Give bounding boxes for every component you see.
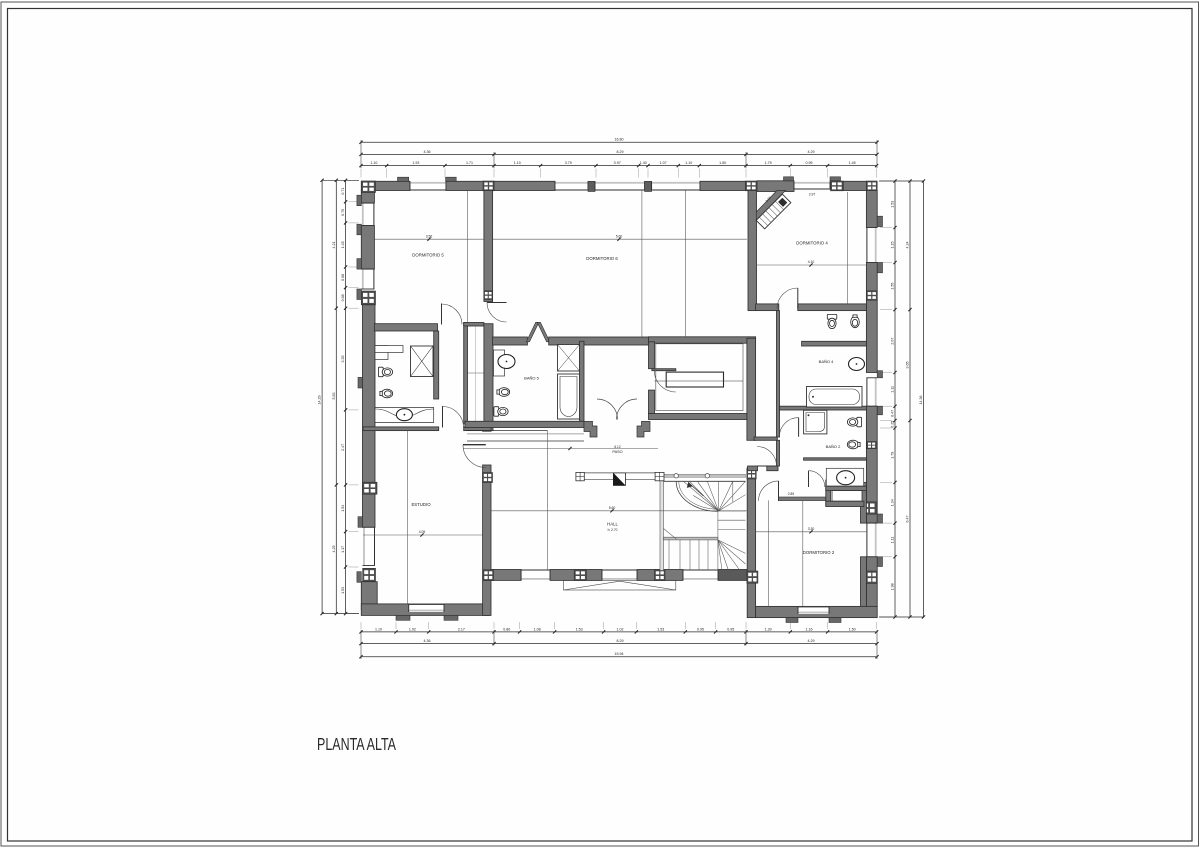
svg-text:PASO: PASO bbox=[612, 450, 622, 454]
svg-text:1.15: 1.15 bbox=[891, 242, 895, 249]
svg-text:4.24: 4.24 bbox=[906, 242, 910, 249]
svg-text:3.79: 3.79 bbox=[565, 161, 572, 165]
svg-text:BAÑO 2: BAÑO 2 bbox=[826, 444, 841, 449]
svg-text:DORMITORIO 5: DORMITORIO 5 bbox=[412, 253, 444, 258]
svg-text:2.17: 2.17 bbox=[458, 627, 465, 631]
svg-text:1.53: 1.53 bbox=[657, 627, 664, 631]
svg-text:15.94: 15.94 bbox=[615, 652, 624, 656]
svg-text:0.25: 0.25 bbox=[891, 421, 895, 428]
svg-text:1.08: 1.08 bbox=[534, 627, 541, 631]
svg-text:14.36: 14.36 bbox=[919, 396, 923, 405]
svg-text:BAÑO 4: BAÑO 4 bbox=[819, 359, 834, 364]
svg-text:DORMITORIO 2: DORMITORIO 2 bbox=[803, 550, 835, 555]
svg-text:1.02: 1.02 bbox=[409, 627, 416, 631]
svg-text:14.29: 14.29 bbox=[318, 396, 322, 405]
svg-text:4.29: 4.29 bbox=[808, 150, 815, 154]
svg-text:1.53: 1.53 bbox=[576, 627, 583, 631]
svg-text:1.07: 1.07 bbox=[660, 161, 667, 165]
svg-text:0.70: 0.70 bbox=[341, 209, 345, 216]
svg-text:0.68: 0.68 bbox=[341, 294, 345, 301]
svg-text:1.71: 1.71 bbox=[466, 161, 473, 165]
svg-text:1.17: 1.17 bbox=[341, 546, 345, 553]
svg-text:1.79: 1.79 bbox=[891, 452, 895, 459]
svg-text:1.98: 1.98 bbox=[891, 583, 895, 590]
svg-text:1.79: 1.79 bbox=[765, 161, 772, 165]
svg-text:1.34: 1.34 bbox=[891, 499, 895, 506]
svg-text:4.29: 4.29 bbox=[808, 639, 815, 643]
svg-text:4.05: 4.05 bbox=[419, 530, 426, 534]
svg-text:0.68: 0.68 bbox=[341, 274, 345, 281]
svg-text:0.47: 0.47 bbox=[891, 410, 895, 417]
svg-text:1.16: 1.16 bbox=[806, 627, 813, 631]
svg-text:0.95: 0.95 bbox=[697, 627, 704, 631]
svg-text:ESTUDIO: ESTUDIO bbox=[411, 502, 431, 507]
svg-text:1.10: 1.10 bbox=[370, 161, 377, 165]
svg-text:1.11: 1.11 bbox=[891, 386, 895, 393]
svg-text:0.95: 0.95 bbox=[806, 161, 813, 165]
svg-text:0.95: 0.95 bbox=[727, 627, 734, 631]
svg-text:2.85: 2.85 bbox=[788, 492, 794, 496]
svg-text:1.39: 1.39 bbox=[765, 627, 772, 631]
svg-text:1.10: 1.10 bbox=[514, 161, 521, 165]
svg-text:4.21: 4.21 bbox=[332, 242, 336, 249]
svg-text:2.97: 2.97 bbox=[809, 193, 816, 197]
svg-text:1.10: 1.10 bbox=[685, 161, 692, 165]
svg-text:6.12: 6.12 bbox=[614, 445, 620, 449]
svg-text:DORMITORIO 6: DORMITORIO 6 bbox=[586, 256, 618, 261]
svg-text:4.25: 4.25 bbox=[332, 546, 336, 553]
svg-text:1.40: 1.40 bbox=[640, 161, 647, 165]
svg-text:1.53: 1.53 bbox=[341, 587, 345, 594]
svg-text:4.10: 4.10 bbox=[808, 260, 815, 264]
svg-text:5.60: 5.60 bbox=[609, 506, 616, 510]
svg-text:0.97: 0.97 bbox=[614, 161, 621, 165]
svg-text:8.29: 8.29 bbox=[617, 150, 624, 154]
svg-text:5.60: 5.60 bbox=[616, 234, 623, 238]
svg-text:1.10: 1.10 bbox=[375, 627, 382, 631]
svg-text:6.47: 6.47 bbox=[906, 516, 910, 523]
svg-text:h: 2.70: h: 2.70 bbox=[608, 528, 618, 532]
svg-text:2.47: 2.47 bbox=[341, 444, 345, 451]
svg-text:1.93: 1.93 bbox=[412, 161, 419, 165]
svg-text:16.80: 16.80 bbox=[615, 138, 624, 142]
svg-text:8.29: 8.29 bbox=[617, 639, 624, 643]
svg-text:3.65: 3.65 bbox=[906, 362, 910, 369]
svg-text:0.71: 0.71 bbox=[341, 188, 345, 195]
svg-text:1.50: 1.50 bbox=[849, 627, 856, 631]
svg-text:5.83: 5.83 bbox=[332, 393, 336, 400]
svg-text:3.56: 3.56 bbox=[426, 234, 433, 238]
svg-text:1.45: 1.45 bbox=[341, 241, 345, 248]
svg-text:3.35: 3.35 bbox=[341, 356, 345, 363]
svg-text:0.80: 0.80 bbox=[503, 627, 510, 631]
svg-text:1.55: 1.55 bbox=[891, 283, 895, 290]
svg-text:1.54: 1.54 bbox=[341, 505, 345, 512]
svg-text:4.36: 4.36 bbox=[424, 150, 431, 154]
svg-text:1.53: 1.53 bbox=[891, 201, 895, 208]
svg-text:4.36: 4.36 bbox=[424, 639, 431, 643]
svg-text:1.50: 1.50 bbox=[719, 161, 726, 165]
svg-text:DORMITORIO 4: DORMITORIO 4 bbox=[796, 241, 828, 246]
svg-text:2.07: 2.07 bbox=[891, 338, 895, 345]
svg-text:BAÑO 5: BAÑO 5 bbox=[524, 376, 539, 381]
svg-text:PLANTA ALTA: PLANTA ALTA bbox=[317, 734, 396, 754]
svg-text:3.30: 3.30 bbox=[808, 527, 815, 531]
svg-text:HALL: HALL bbox=[607, 522, 618, 527]
svg-text:1.45: 1.45 bbox=[849, 161, 856, 165]
svg-text:1.02: 1.02 bbox=[617, 627, 624, 631]
svg-text:1.11: 1.11 bbox=[891, 537, 895, 544]
